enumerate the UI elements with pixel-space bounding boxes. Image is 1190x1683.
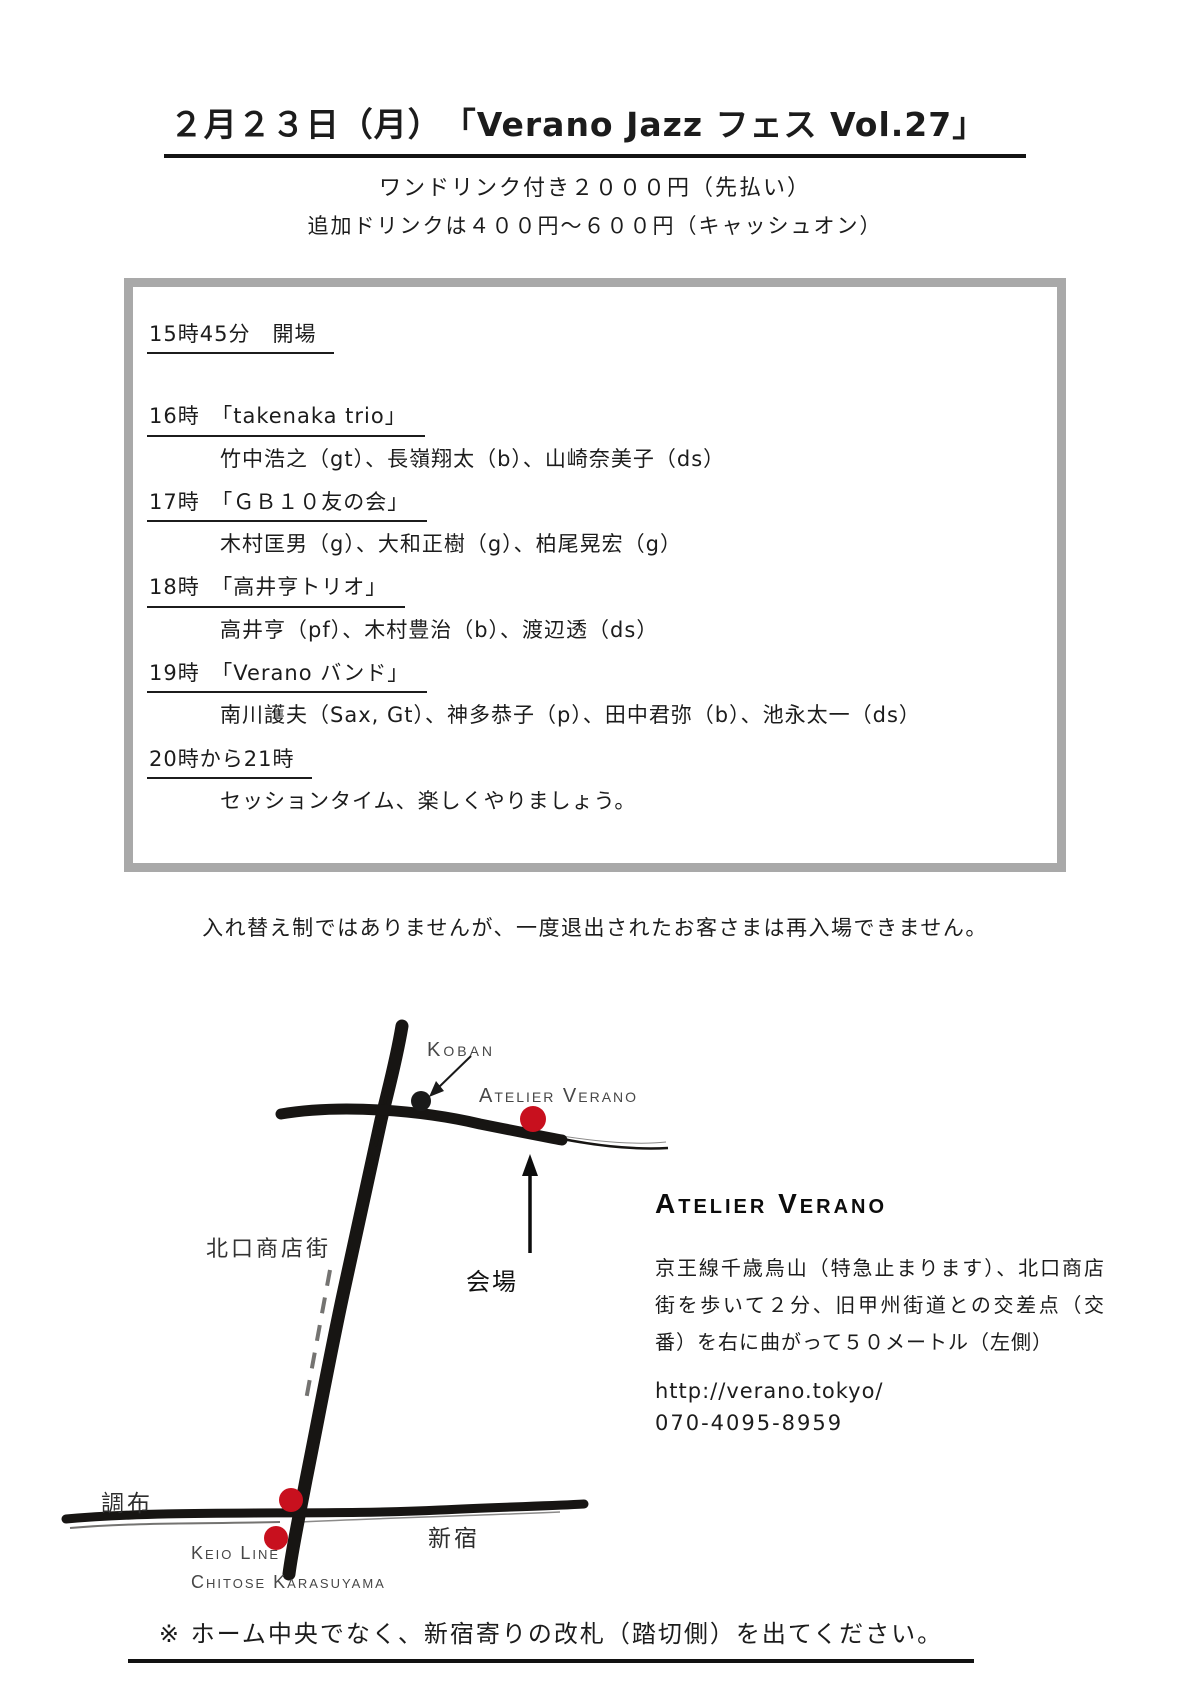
station-exit-marker-dot [279, 1488, 303, 1512]
venue-access-description: 京王線千歳烏山（特急止まります）、北口商店街を歩いて２分、旧甲州街道との交差点（… [655, 1250, 1105, 1361]
map-label-chofu: 調布 [101, 1484, 153, 1518]
map-label-keio-line: Keio Line [191, 1543, 280, 1564]
reentry-notice: 入れ替え制ではありませんが、一度退出されたお客さまは再入場できません。 [0, 912, 1190, 942]
venue-url: http://verano.tokyo/ [655, 1379, 1105, 1403]
venue-marker-dot [520, 1106, 546, 1132]
schedule-entry-open: 15時45分 開場 [147, 321, 1037, 354]
venue-phone: 070-4095-8959 [655, 1411, 1105, 1435]
venue-arrowhead-icon [522, 1154, 538, 1176]
schedule-entry-heading: 18時 「高井亨トリオ」 [147, 574, 405, 607]
title-section: ２月２３日（月） 「Verano Jazz フェス Vol.27」 [0, 0, 1190, 158]
map-label-chitose-karasuyama: Chitose Karasuyama [191, 1572, 386, 1593]
schedule-box: 15時45分 開場 16時 「takenaka trio」 竹中浩之（gt）、長… [124, 278, 1066, 872]
schedule-entry: 16時 「takenaka trio」 竹中浩之（gt）、長嶺翔太（b）、山崎奈… [147, 403, 1037, 473]
extra-drink-price-line: 追加ドリンクは４００円～６００円（キャッシュオン） [0, 210, 1190, 240]
schedule-entry-heading: 20時から21時 [147, 746, 312, 779]
access-map [0, 940, 760, 1640]
schedule-entry-members: 高井亨（pf）、木村豊治（b）、渡辺透（ds） [147, 617, 1037, 644]
koban-marker-dot [411, 1091, 431, 1111]
map-label-venue: 会場 [466, 1262, 518, 1297]
schedule-entry-members: 木村匡男（g）、大和正樹（g）、柏尾晃宏（g） [147, 531, 1037, 558]
schedule-entry-members: 南川護夫（Sax, Gt）、神多恭子（p）、田中君弥（b）、池永太一（ds） [147, 702, 1037, 729]
keio-line-track-texture [70, 1522, 280, 1528]
flyer-page: ２月２３日（月） 「Verano Jazz フェス Vol.27」 ワンドリンク… [0, 0, 1190, 1683]
schedule-entry: 19時 「Verano バンド」 南川護夫（Sax, Gt）、神多恭子（p）、田… [147, 660, 1037, 730]
schedule-entry: 18時 「高井亨トリオ」 高井亨（pf）、木村豊治（b）、渡辺透（ds） [147, 574, 1037, 644]
schedule-entry-heading: 15時45分 開場 [147, 321, 334, 354]
map-label-koban: Koban [427, 1039, 495, 1062]
venue-name: Atelier Verano [655, 1188, 1105, 1220]
map-label-atelier-verano: Atelier Verano [479, 1085, 638, 1108]
map-label-shinjuku: 新宿 [428, 1519, 480, 1553]
schedule-entry: 20時から21時 セッションタイム、楽しくやりましょう。 [147, 746, 1037, 816]
schedule-entry-heading: 17時 「ＧＢ１０友の会」 [147, 489, 427, 522]
drink-price-line: ワンドリンク付き２０００円（先払い） [0, 170, 1190, 202]
venue-info-section: Atelier Verano 京王線千歳烏山（特急止まります）、北口商店街を歩い… [655, 1188, 1105, 1435]
schedule-entry-members: 竹中浩之（gt）、長嶺翔太（b）、山崎奈美子（ds） [147, 446, 1037, 473]
old-koshu-kaido-road [281, 1109, 562, 1140]
map-label-north-shopping-street: 北口商店街 [206, 1231, 331, 1263]
map-roads [66, 1026, 668, 1574]
exit-gate-note: ※ ホーム中央でなく、新宿寄りの改札（踏切側）を出てください。 [128, 1614, 974, 1663]
event-title: ２月２３日（月） 「Verano Jazz フェス Vol.27」 [164, 98, 1026, 158]
schedule-entry-members: セッションタイム、楽しくやりましょう。 [147, 788, 1037, 815]
schedule-entry-heading: 16時 「takenaka trio」 [147, 403, 425, 436]
schedule-entry: 17時 「ＧＢ１０友の会」 木村匡男（g）、大和正樹（g）、柏尾晃宏（g） [147, 489, 1037, 559]
schedule-entry-heading: 19時 「Verano バンド」 [147, 660, 427, 693]
